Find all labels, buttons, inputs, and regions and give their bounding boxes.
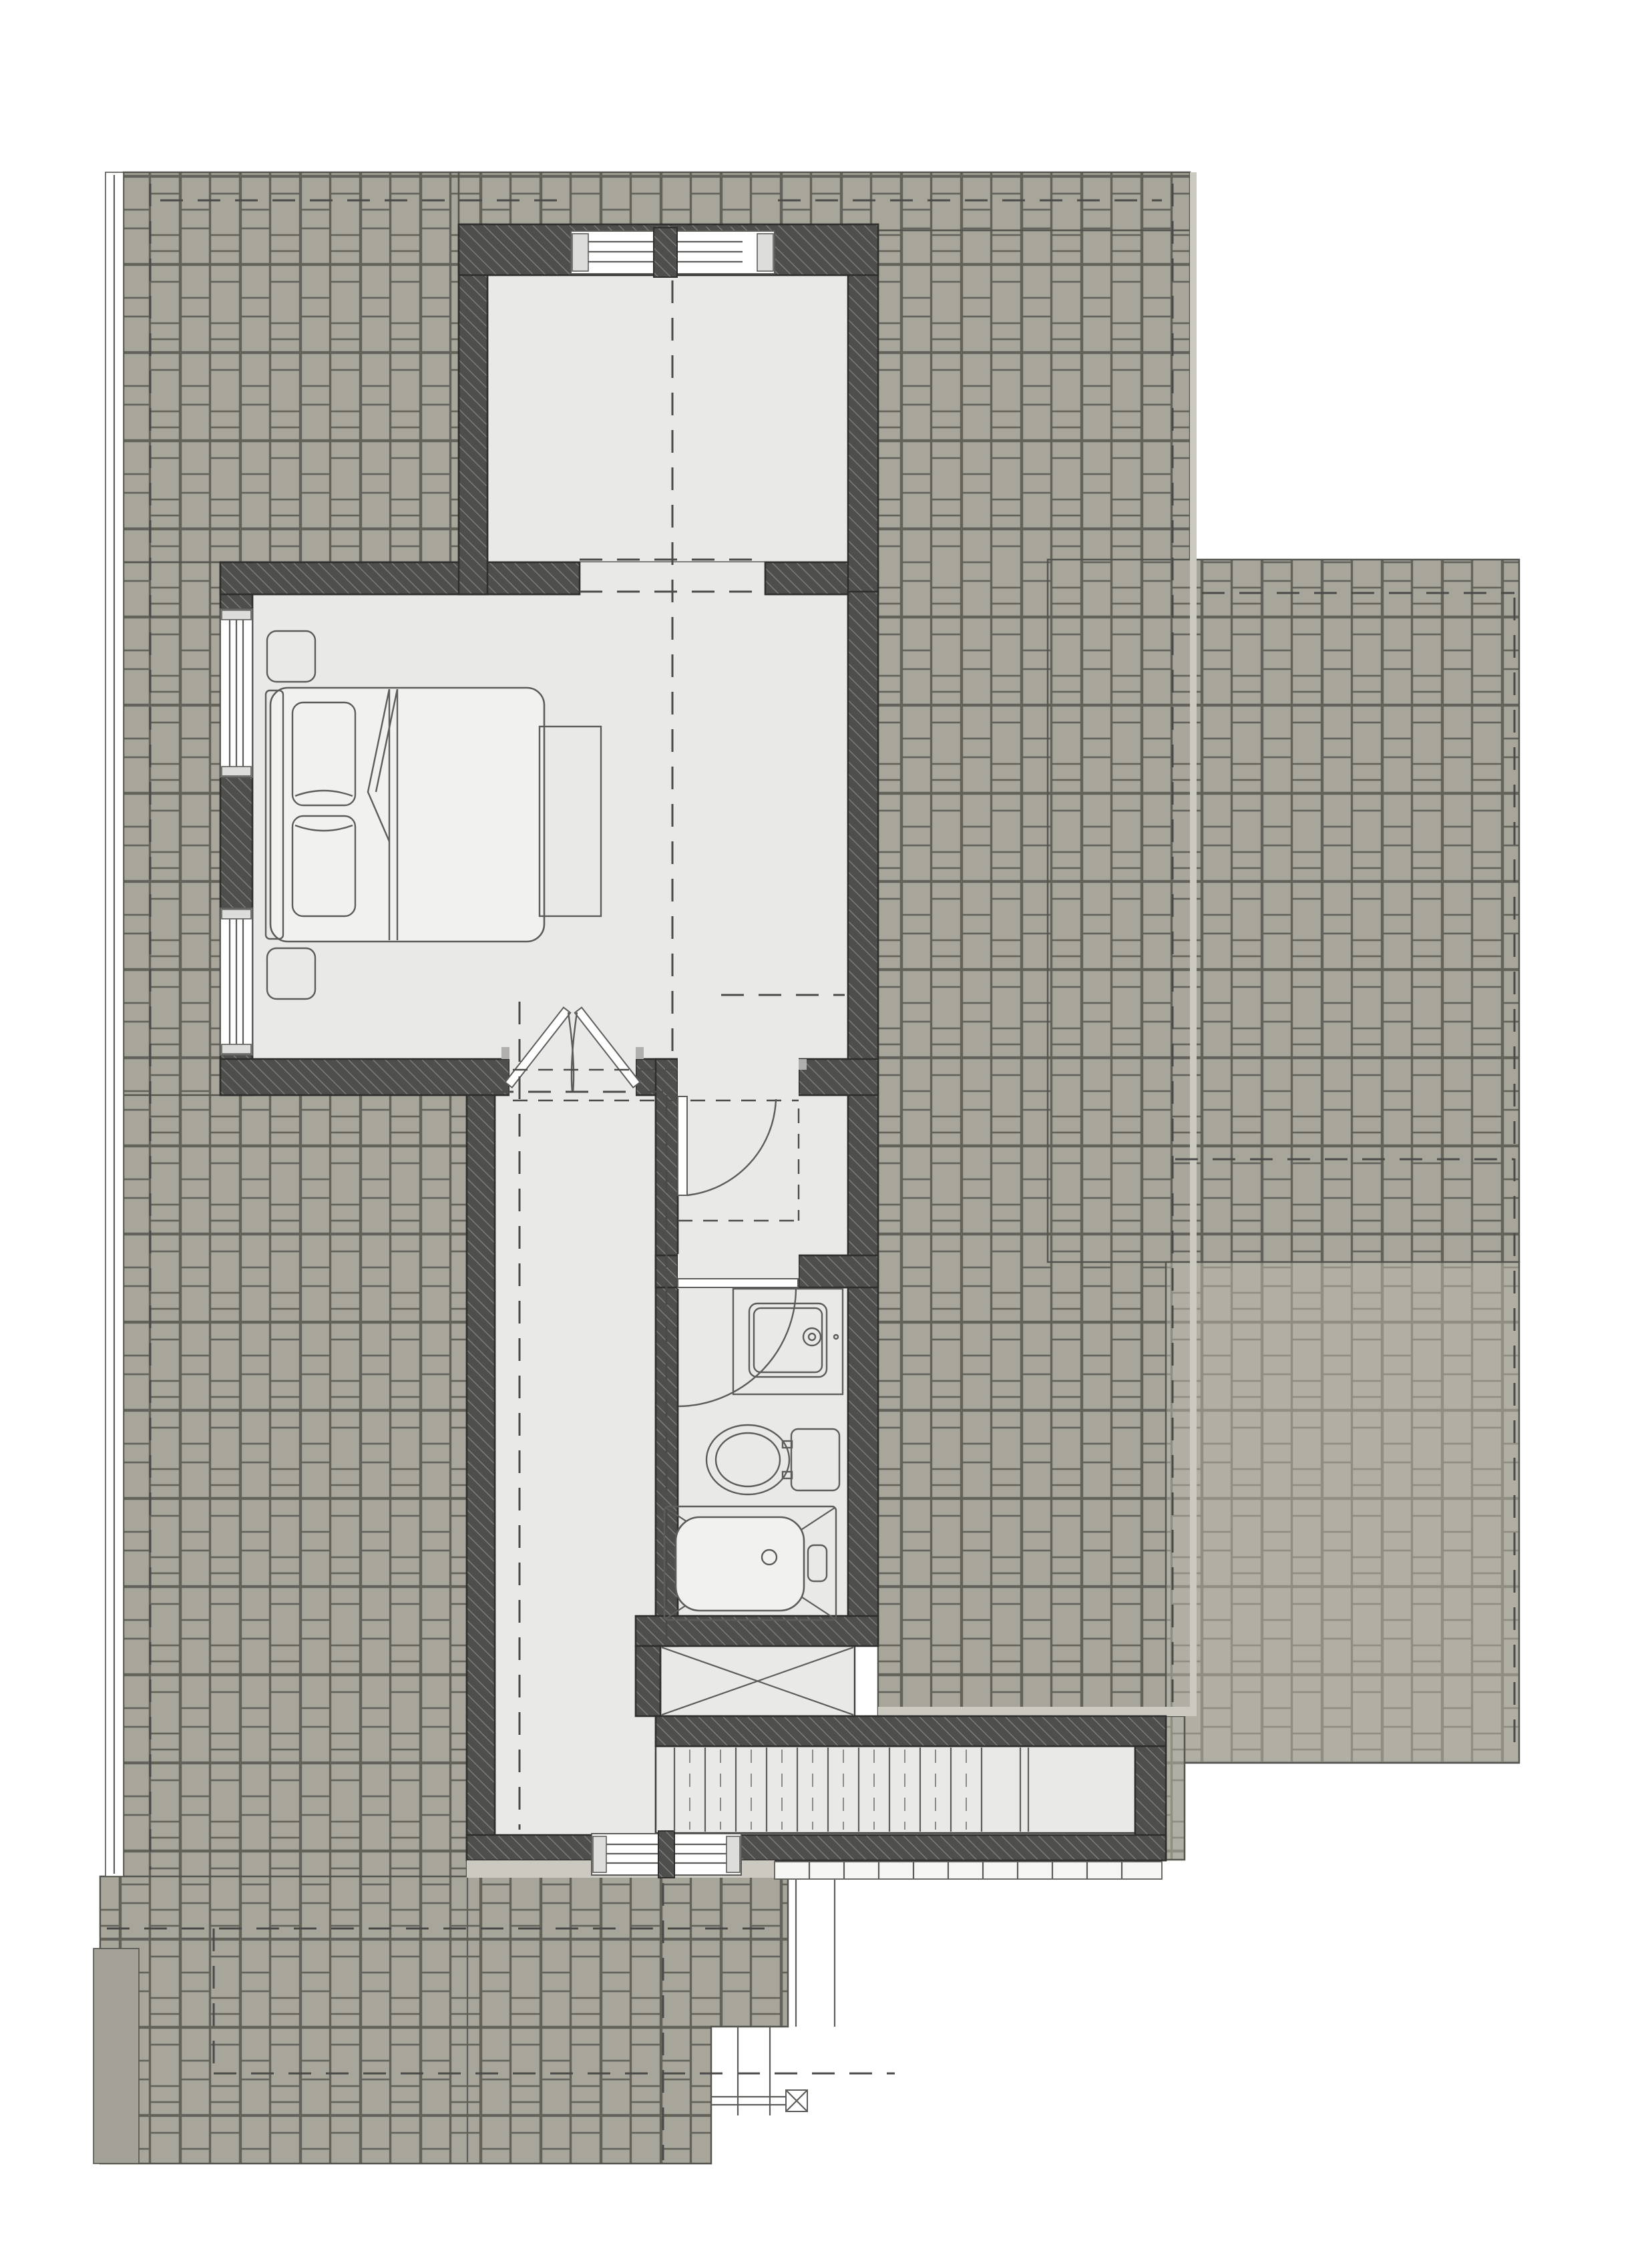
wall-bedroom-top bbox=[220, 562, 580, 594]
wall-linen-left bbox=[636, 1646, 660, 1716]
floor-plan-canvas bbox=[0, 0, 1652, 2243]
bed bbox=[266, 688, 544, 942]
roof-edge-column bbox=[1166, 1716, 1185, 1860]
roof-porch bbox=[100, 1876, 788, 2164]
eave-strip-roofbottom bbox=[878, 1707, 1190, 1716]
bonus-room-double-window bbox=[571, 226, 775, 277]
wall-bonus-right bbox=[848, 224, 878, 594]
bedroom-window-upper bbox=[220, 609, 252, 777]
bedroom-window-lower bbox=[220, 908, 252, 1055]
roof-left-lower bbox=[124, 1095, 467, 1878]
room-stairwell bbox=[656, 1746, 1135, 1833]
wall-hall-left bbox=[467, 1095, 495, 1858]
wall-bottom bbox=[467, 1835, 1166, 1860]
porch-left-gray-strip bbox=[93, 1949, 139, 2164]
eave-strip-right bbox=[1190, 172, 1197, 1716]
wall-stair-top bbox=[656, 1716, 1166, 1746]
wall-corridor-right bbox=[848, 592, 878, 1643]
hall-double-window bbox=[592, 1831, 741, 1878]
room-closet bbox=[678, 1095, 848, 1255]
wall-closet-top-right bbox=[799, 1059, 878, 1095]
chimney-post-x bbox=[786, 2090, 807, 2111]
wall-bedroom-bottom-left bbox=[220, 1059, 509, 1095]
window-center-post bbox=[654, 228, 677, 277]
roof-left-side bbox=[124, 562, 220, 1096]
wall-bonus-left bbox=[459, 224, 487, 594]
deck-board-strip bbox=[775, 1862, 1162, 1879]
room-bonus bbox=[487, 275, 855, 562]
roof-left-main bbox=[124, 172, 459, 562]
roof-far-right-lower bbox=[1166, 1262, 1519, 1763]
roof-far-right-upper bbox=[1048, 560, 1519, 1262]
wall-bath-top-right bbox=[799, 1255, 878, 1287]
window-center-post bbox=[658, 1831, 674, 1878]
